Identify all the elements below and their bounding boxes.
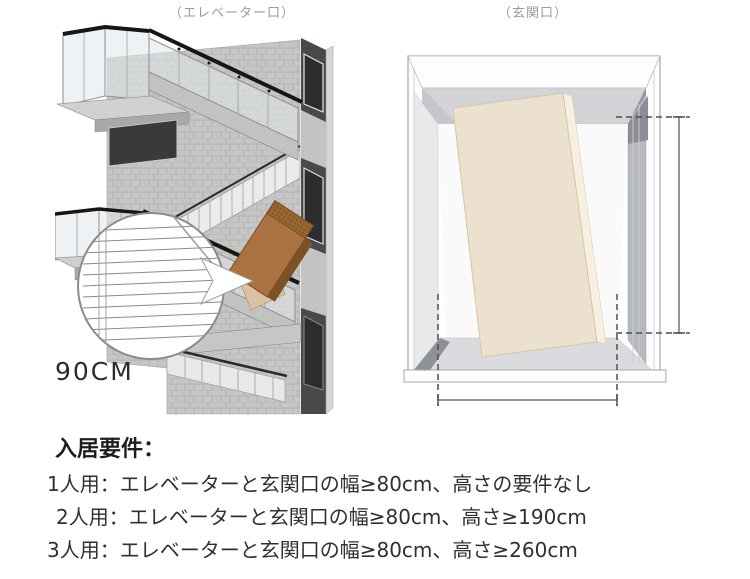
requirement-line-3person: 3人用：エレベーターと玄関口の幅≥80cm、高さ≥260cm <box>47 534 578 563</box>
entrance-caption: （玄関口） <box>468 2 598 21</box>
requirement-line-2person: 2人用：エレベーターと玄関口の幅≥80cm、高さ≥190cm <box>56 501 587 530</box>
requirement-line-1person: 1人用：エレベーターと玄関口の幅≥80cm、高さの要件なし <box>47 468 592 497</box>
elevator-door-opening <box>109 120 177 166</box>
requirements-heading: 入居要件： <box>55 431 165 463</box>
entrance-doorway-illustration <box>390 48 700 418</box>
stair-width-label: 90CM <box>55 357 134 386</box>
infographic-canvas: （エレベーター口） （玄関口） <box>0 0 750 579</box>
elevator-stairwell-illustration: 90CM <box>55 18 335 418</box>
